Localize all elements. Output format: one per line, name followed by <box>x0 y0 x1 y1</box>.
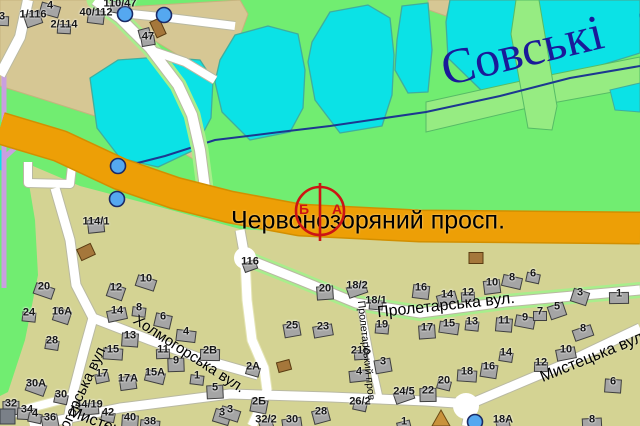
house-number: 4 <box>183 327 189 338</box>
house-number: 32 <box>5 399 17 410</box>
transit-stop-marker[interactable] <box>110 192 125 207</box>
house-number: 36 <box>44 413 56 424</box>
house-number: 2Б <box>252 397 266 408</box>
house-number: 40 <box>124 413 136 424</box>
house-number: 24 <box>23 308 35 319</box>
landmark-building <box>77 243 96 260</box>
house-number: 3 <box>227 405 233 416</box>
house-number: 14 <box>111 306 123 317</box>
house-number: 2А <box>246 362 260 373</box>
house-number: 3 <box>577 288 583 299</box>
map-viewport[interactable]: 31/11642/11440/112110/4747114/1101162018… <box>0 0 640 426</box>
house-number: 18/2 <box>346 281 367 292</box>
house-number: 5 <box>212 383 218 394</box>
landmark-building <box>469 253 483 264</box>
house-number: 23 <box>317 322 329 333</box>
house-number: 12 <box>110 283 122 294</box>
house-number: 17А <box>118 374 138 385</box>
house-number: 5 <box>554 302 560 313</box>
house-number: 9 <box>522 313 528 324</box>
landmark-triangle-icon <box>432 410 450 426</box>
transit-stop-marker[interactable] <box>111 159 126 174</box>
house-number: 30А <box>26 379 46 390</box>
house-number: 10 <box>560 345 572 356</box>
house-number: 18 <box>461 367 473 378</box>
house-number: 32/2 <box>255 415 276 426</box>
house-number: 15А <box>145 368 165 379</box>
house-number: 6 <box>160 312 166 323</box>
house-number: 17 <box>421 323 433 334</box>
house-number: 1 <box>616 289 622 300</box>
house-number: 22 <box>422 386 434 397</box>
house-number: 1 <box>401 417 407 426</box>
house-number: 20 <box>319 284 331 295</box>
house-number: 28 <box>315 407 327 418</box>
house-number: 13 <box>466 317 478 328</box>
transit-stop-marker[interactable] <box>468 415 483 426</box>
house-number: 8 <box>580 324 586 335</box>
house-number: 16 <box>415 283 427 294</box>
building <box>0 409 15 424</box>
house-number: 6 <box>610 377 616 388</box>
house-number: 4 <box>32 409 38 420</box>
house-number: 1/116 <box>20 10 47 21</box>
house-number: 38 <box>144 417 156 426</box>
house-number: 7 <box>537 307 543 318</box>
house-number: 28 <box>46 336 58 347</box>
house-number: 4 <box>47 1 53 12</box>
house-number: 20 <box>38 282 50 293</box>
house-number: 24/5 <box>393 387 414 398</box>
house-number: 3 <box>219 408 225 419</box>
house-number: 3 <box>0 12 5 23</box>
house-number: 2/114 <box>51 20 78 31</box>
house-number: 20 <box>438 376 450 387</box>
street-name-label: Червонозоряний просп. <box>231 209 505 234</box>
house-number: 14 <box>500 348 512 359</box>
house-number: 15 <box>443 319 455 330</box>
house-number: 8 <box>589 415 595 426</box>
house-number: 30 <box>286 415 298 426</box>
house-number: 6 <box>530 269 536 280</box>
house-number: 25 <box>286 321 298 332</box>
house-number: 30 <box>55 390 67 401</box>
house-number: 116 <box>241 257 259 268</box>
house-number: 110/47 <box>103 0 136 10</box>
house-number: 47 <box>142 32 154 43</box>
transit-stop-marker[interactable] <box>157 8 172 23</box>
landmark-building <box>276 359 291 372</box>
house-number: 10 <box>140 274 152 285</box>
pond <box>395 3 432 93</box>
house-number: 16 <box>483 362 495 373</box>
house-number: 13 <box>124 331 136 342</box>
house-number: 1 <box>194 371 200 382</box>
house-number: 16А <box>52 307 72 318</box>
house-number: 114/1 <box>83 217 110 228</box>
house-number: 18А <box>493 415 513 426</box>
house-number: 10 <box>486 278 498 289</box>
house-number: 3 <box>380 357 386 368</box>
house-number: 11 <box>498 316 510 327</box>
house-number: 8 <box>509 273 515 284</box>
